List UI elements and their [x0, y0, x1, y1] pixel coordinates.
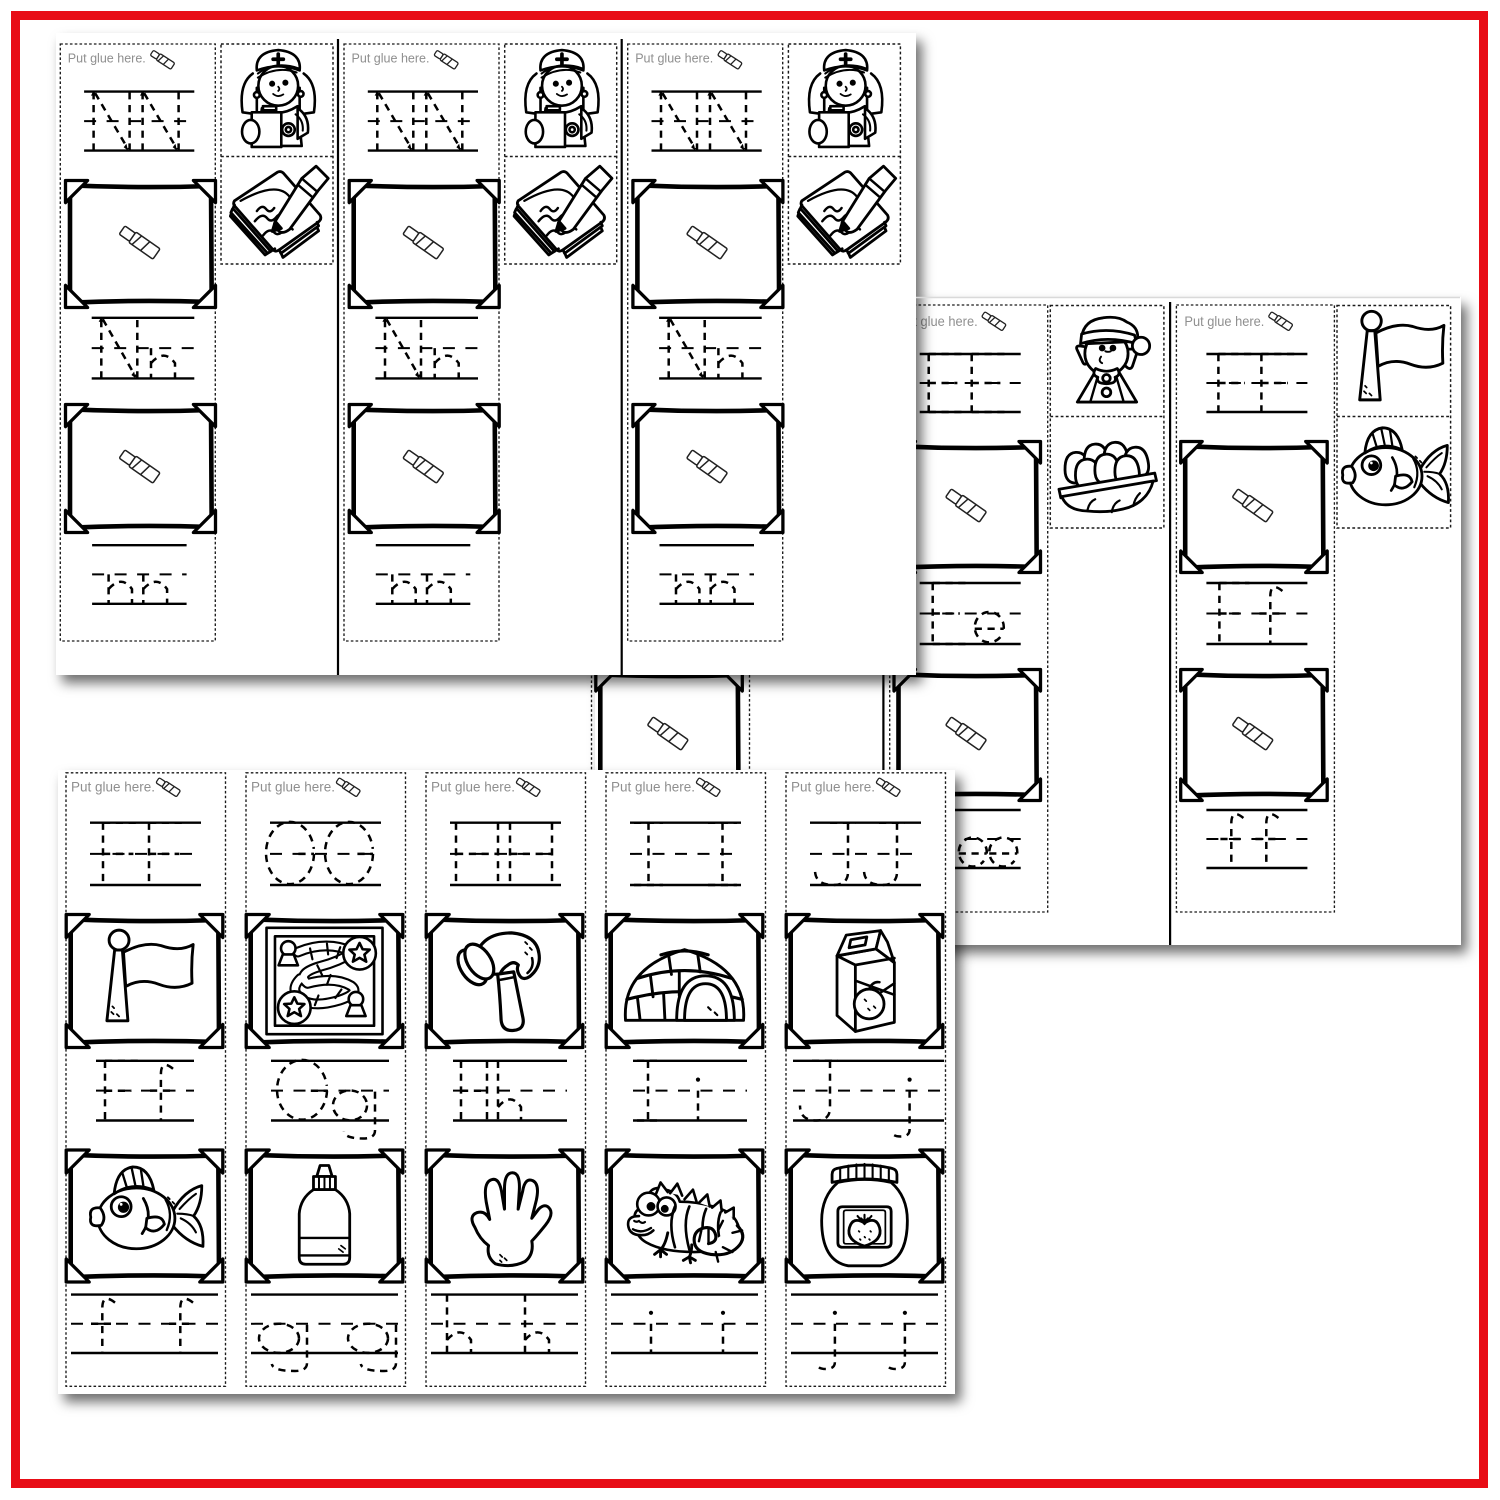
svg-text:Put glue here.: Put glue here. — [611, 780, 695, 795]
svg-text:Put glue here.: Put glue here. — [71, 780, 155, 795]
svg-text:Put glue here.: Put glue here. — [791, 780, 875, 795]
svg-text:Put glue here.: Put glue here. — [251, 780, 335, 795]
svg-text:Put glue here.: Put glue here. — [635, 50, 713, 65]
svg-text:Put glue here.: Put glue here. — [1184, 314, 1264, 329]
svg-text:Put glue here.: Put glue here. — [431, 780, 515, 795]
svg-text:Put glue here.: Put glue here. — [352, 50, 430, 65]
svg-text:Put glue here.: Put glue here. — [68, 50, 146, 65]
